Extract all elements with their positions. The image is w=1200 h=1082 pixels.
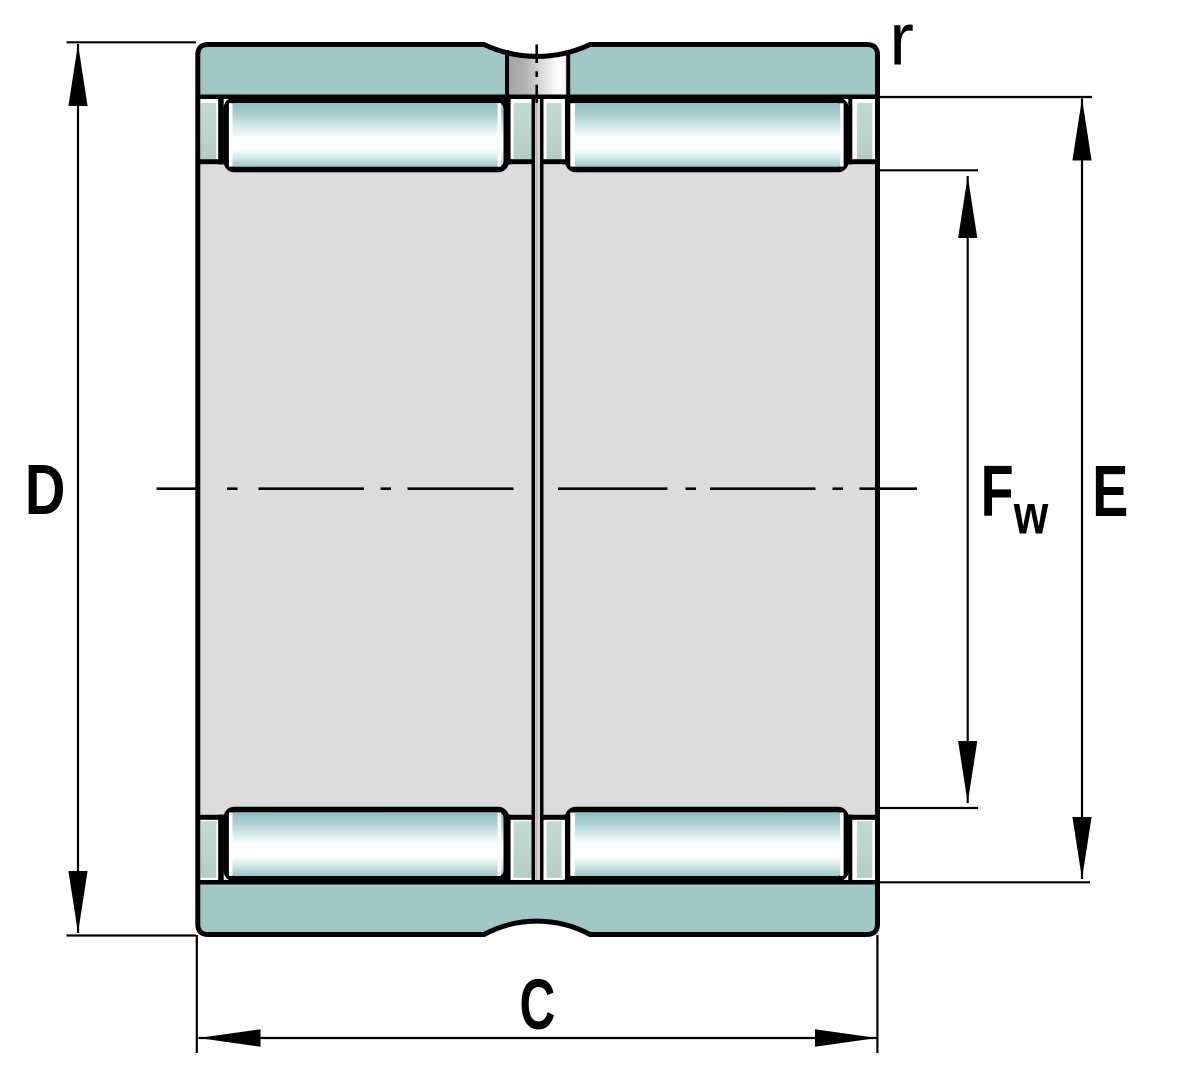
svg-text:F: F	[981, 450, 1014, 532]
svg-text:D: D	[25, 449, 65, 529]
svg-text:E: E	[1092, 450, 1128, 532]
svg-text:w: w	[1013, 484, 1049, 546]
svg-text:r: r	[889, 0, 914, 80]
svg-text:C: C	[520, 965, 556, 1045]
